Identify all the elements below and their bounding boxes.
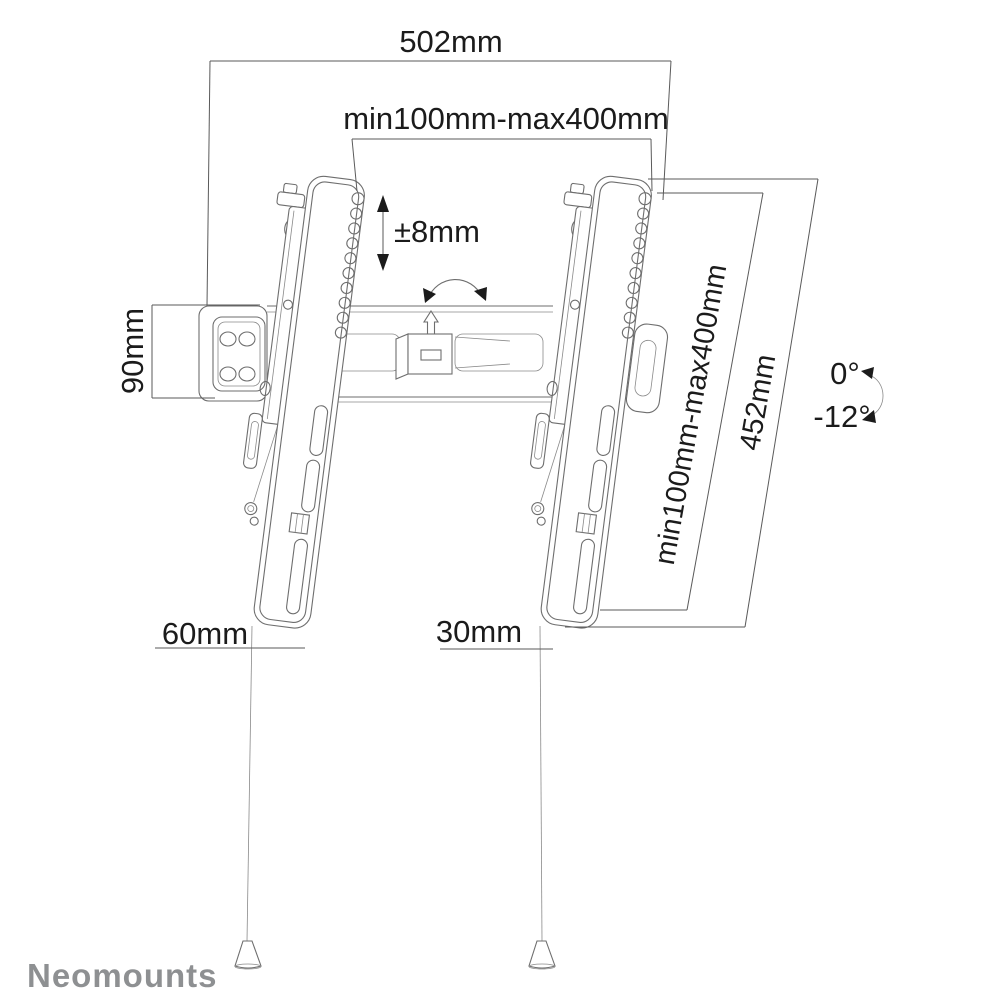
right-bracket-assembly (511, 171, 687, 969)
pull-cord (540, 626, 542, 941)
pull-cord (247, 626, 252, 941)
wall-mount-technical-drawing: 502mm min100mm-max400mm ±8mm 90mm min100… (0, 0, 1004, 1004)
tilt-min-label: -12° (813, 399, 870, 434)
tilt-range-arc-icon (869, 375, 883, 416)
dim-total-width-label: 502mm (399, 24, 502, 59)
down-arrowhead-icon (377, 254, 389, 271)
dim-height-adjustment-label: ±8mm (394, 214, 480, 249)
dim-bottom-offset-right: 30mm (436, 614, 553, 649)
up-arrowhead-icon (377, 195, 389, 212)
dim-bottom-offset-left-label: 60mm (162, 616, 248, 651)
tilt-arc-icon (423, 280, 487, 303)
tilt-angle-annotation: 0° -12° (813, 356, 883, 434)
tilt-max-label: 0° (830, 356, 860, 391)
left-bracket-assembly (224, 171, 367, 969)
dim-height-adjustment: ±8mm (377, 195, 480, 271)
wall-plate (199, 306, 267, 401)
brand-logo: Neomounts (27, 957, 218, 994)
slider-block (396, 334, 452, 379)
diagram-page: 502mm min100mm-max400mm ±8mm 90mm min100… (0, 0, 1004, 1004)
dim-vesa-horizontal-label: min100mm-max400mm (343, 101, 669, 136)
dim-bottom-offset-right-label: 30mm (436, 614, 522, 649)
up-arrow-icon (424, 311, 438, 334)
dim-wall-plate-height-label: 90mm (115, 308, 150, 394)
dim-bracket-length-label: 452mm (734, 352, 782, 453)
dim-vesa-vertical-label: min100mm-max400mm (649, 262, 733, 568)
